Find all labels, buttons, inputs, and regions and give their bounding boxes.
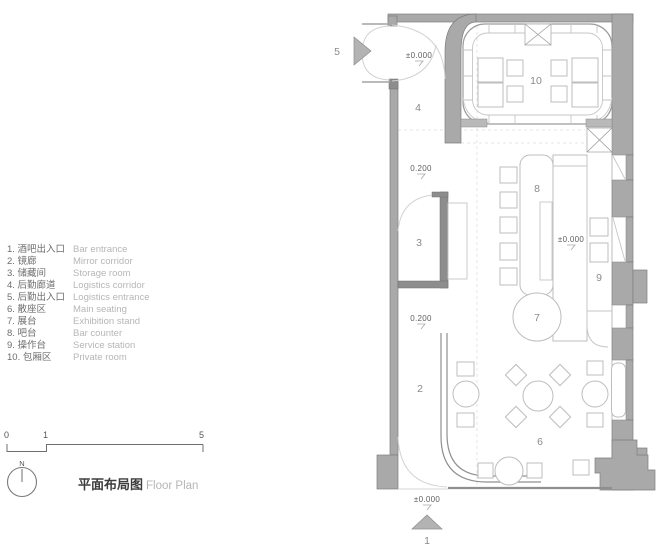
scale-label-1: 1: [43, 430, 48, 440]
room-label-8: 8: [534, 183, 540, 195]
legend-item-zh: 4. 后勤廊道: [7, 279, 56, 291]
level-marker-text: ±0.000: [558, 235, 584, 244]
floor-plan-page: ±0.000 0.200 ±0.000 0.200 ±0.000 4 3 2 6…: [0, 0, 672, 553]
scale-bar: 0 1 5: [4, 430, 204, 452]
legend-item-en: Private room: [73, 352, 127, 363]
main-entrance-arrow-icon: [412, 515, 442, 529]
level-marker-text: 0.200: [410, 164, 432, 173]
legend-item-en: Logistics entrance: [73, 292, 150, 303]
window-bench: [612, 363, 626, 417]
room-label-3: 3: [416, 237, 422, 249]
legend-item-zh: 10. 包厢区: [7, 351, 52, 363]
legend-item-zh: 1. 酒吧出入口: [7, 243, 65, 255]
north-label: N: [19, 459, 24, 468]
room-label-2: 2: [417, 383, 423, 395]
legend-item-en: Exhibition stand: [73, 316, 140, 327]
booth-step: [461, 119, 487, 127]
legend-item-en: Storage room: [73, 268, 131, 279]
room-label-4: 4: [415, 102, 421, 114]
title-en: Floor Plan: [146, 480, 198, 492]
scale-label-5: 5: [199, 430, 204, 440]
legend-item-zh: 2. 镜廊: [7, 255, 37, 267]
door-swings: [362, 25, 447, 487]
top-wall: [388, 14, 633, 22]
storage-wall: [440, 192, 448, 288]
title-zh: 平面布局图: [78, 477, 143, 492]
left-wall: [390, 82, 398, 455]
cabinet: [448, 203, 467, 279]
legend-item-zh: 6. 散座区: [7, 303, 47, 315]
service-station: [587, 157, 612, 347]
column: [587, 128, 612, 152]
legend-item-en: Bar entrance: [73, 244, 127, 255]
legend-item-zh: 5. 后勤出入口: [7, 291, 65, 303]
level-marker-text: ±0.000: [414, 495, 440, 504]
bar-stools: [500, 167, 517, 285]
corner-pier: [595, 440, 655, 490]
floor-plan-drawing: ±0.000 0.200 ±0.000 0.200 ±0.000 4 3 2 6…: [0, 0, 672, 553]
north-compass-icon: N: [8, 459, 37, 497]
main-entrance-label: 1: [424, 535, 430, 547]
room-label-7: 7: [534, 312, 540, 324]
legend-item-en: Logistics corridor: [73, 280, 145, 291]
room-label-10: 10: [530, 75, 542, 87]
legend-item-en: Mirror corridor: [73, 256, 133, 267]
legend-item-zh: 8. 吧台: [7, 327, 37, 339]
level-marker-text: 0.200: [410, 314, 432, 323]
room-label-9: 9: [596, 272, 602, 284]
wall-pilaster: [633, 270, 647, 303]
legend-item-en: Service station: [73, 340, 135, 351]
legend-item-zh: 3. 储藏间: [7, 267, 46, 279]
drawing-title: 平面布局图 Floor Plan: [78, 477, 198, 492]
legend-item-zh: 9. 操作台: [7, 339, 46, 351]
scale-label-0: 0: [4, 430, 9, 440]
level-marker-text: ±0.000: [406, 51, 432, 60]
side-entrance-label: 5: [334, 46, 340, 58]
room-label-6: 6: [537, 436, 543, 448]
legend-item-zh: 7. 展台: [7, 315, 37, 327]
legend: 1. 酒吧出入口 Bar entrance 2. 镜廊 Mirror corri…: [7, 243, 150, 363]
curved-wall-outer: [441, 333, 541, 482]
booth-step: [586, 119, 612, 127]
legend-item-en: Main seating: [73, 304, 127, 315]
legend-item-en: Bar counter: [73, 328, 122, 339]
